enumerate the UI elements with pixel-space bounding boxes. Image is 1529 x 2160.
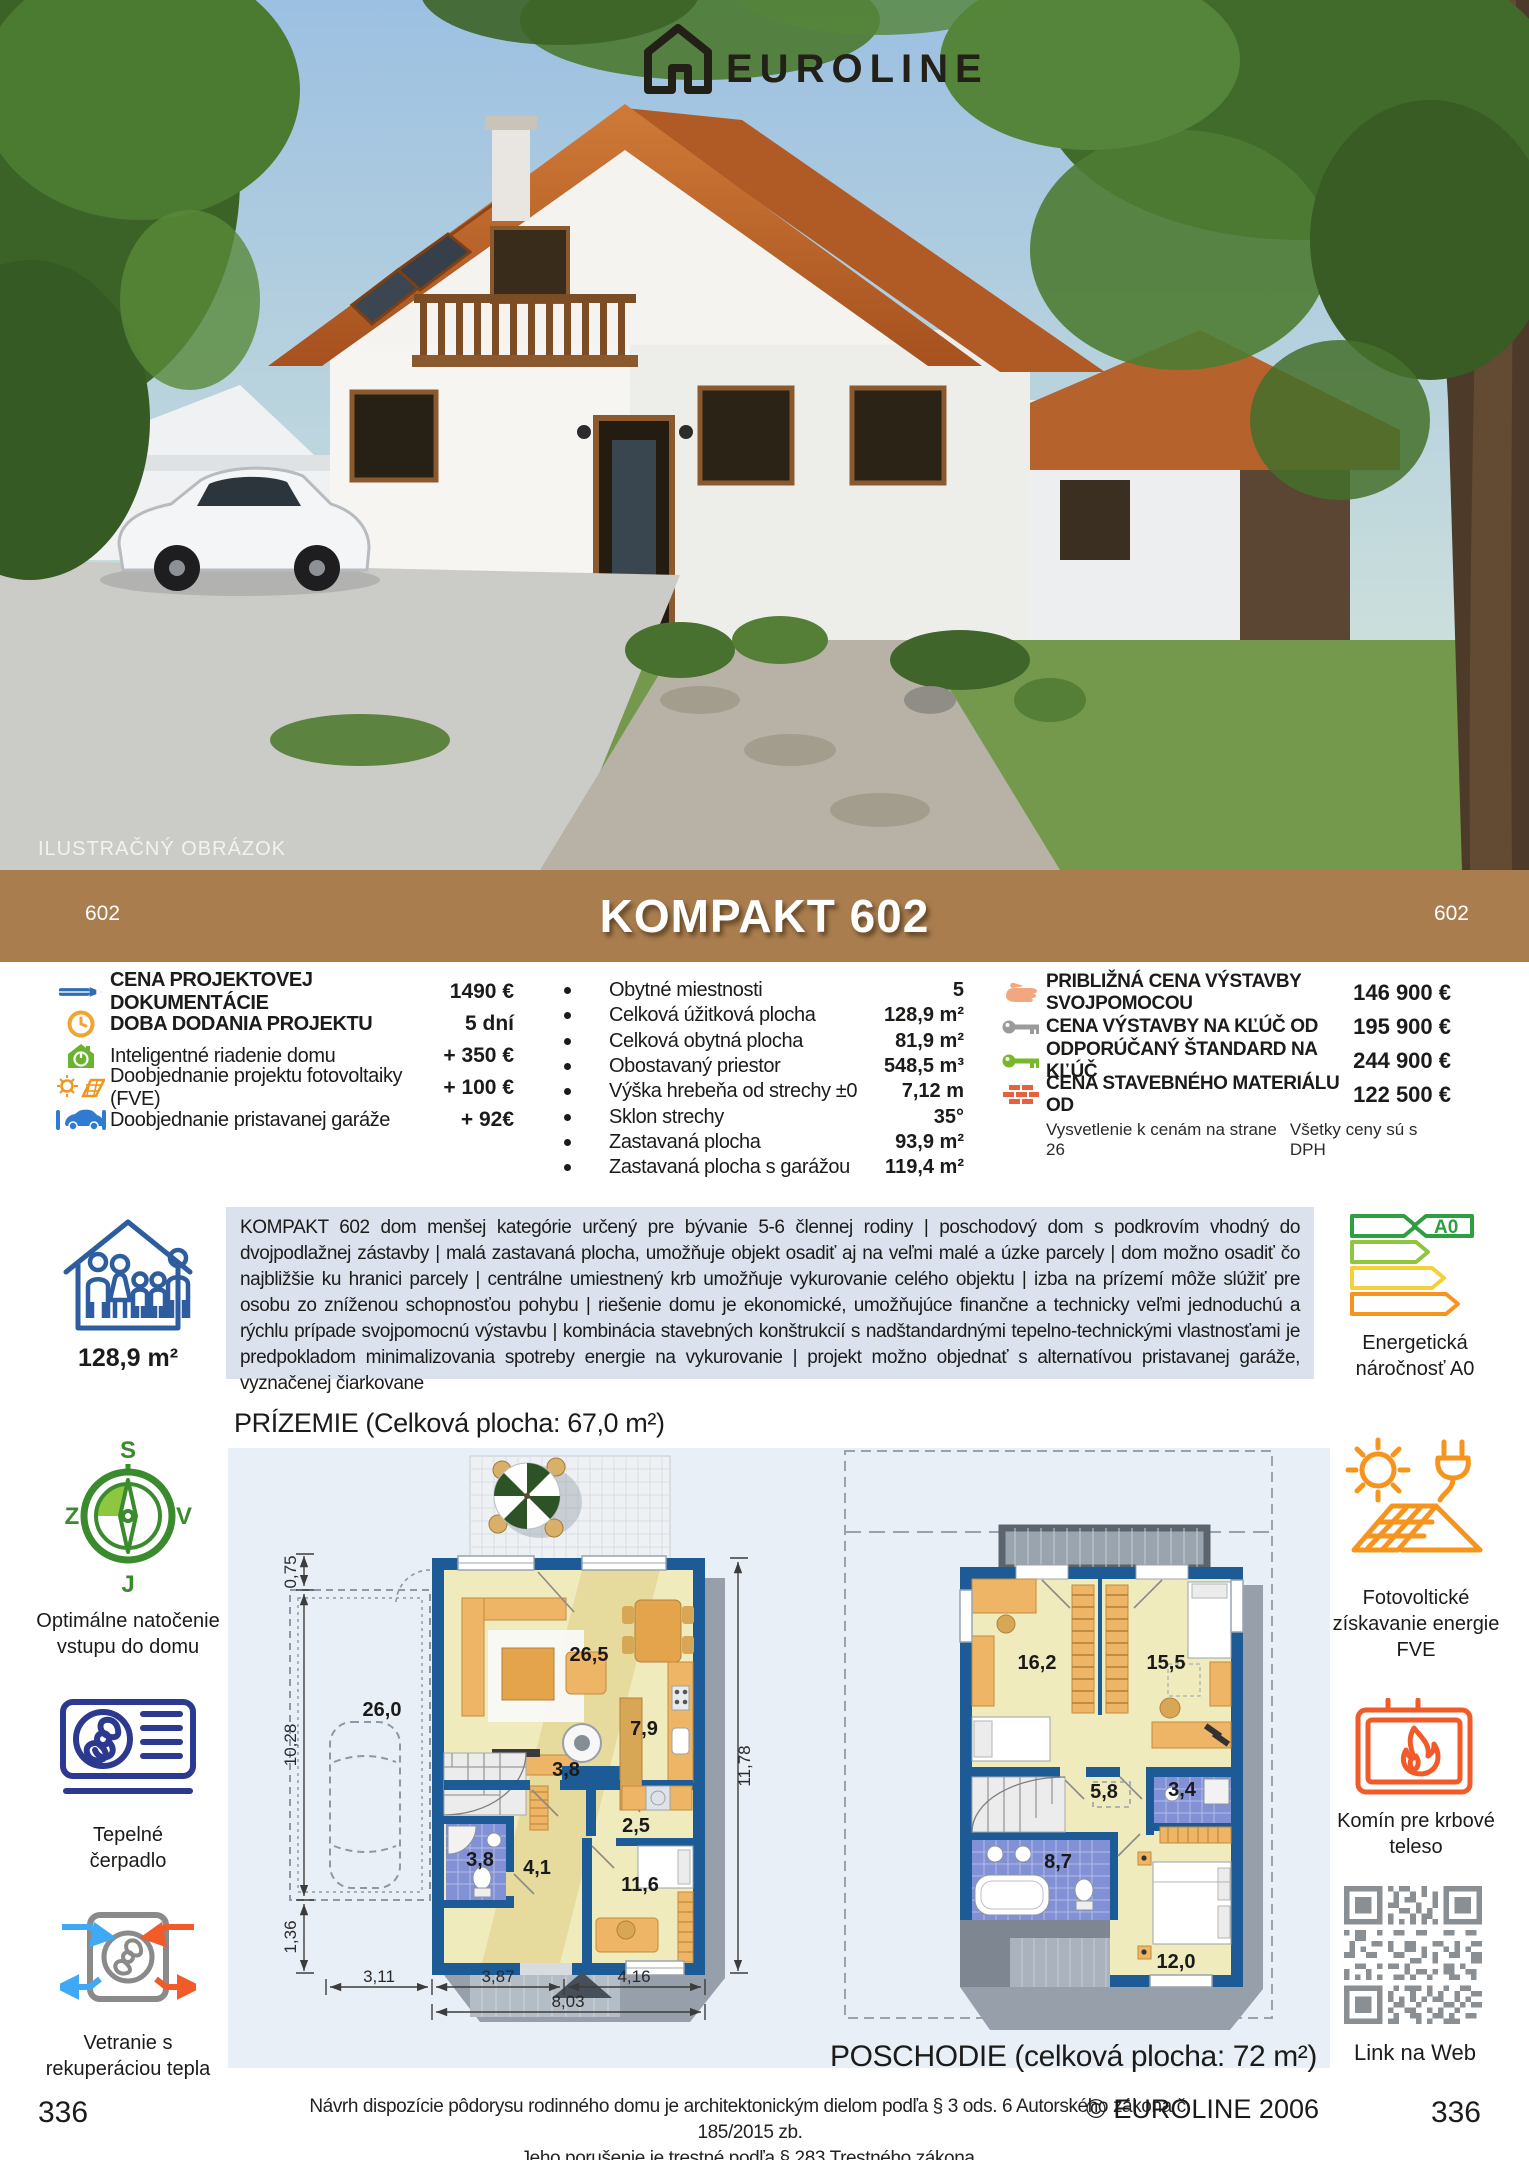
page-number-left: 336	[38, 2096, 88, 2130]
spec-row: Obytné miestnosti5	[556, 978, 964, 1003]
spec-row: Celková úžitková plocha128,9 m²	[556, 1003, 964, 1028]
photo-caption: ILUSTRAČNÝ OBRÁZOK	[38, 838, 286, 861]
pricing-value: + 100 €	[443, 1076, 514, 1100]
spec-label: Celková úžitková plocha	[609, 1004, 884, 1027]
room-area: 3,8	[466, 1849, 494, 1871]
ground-floor-heading: PRÍZEMIE (Celková plocha: 67,0 m²)	[234, 1408, 665, 1439]
energy-badge: A0	[1434, 1217, 1458, 1238]
compass-icon: S V J Z	[62, 1440, 194, 1598]
page-number-right: 336	[1431, 2096, 1481, 2130]
spec-label: Obostavaný priestor	[609, 1055, 884, 1078]
spec-label: Zastavaná plocha s garážou	[609, 1156, 885, 1179]
pricing-row: DOBA DODANIA PROJEKTU 5 dní	[52, 1008, 514, 1040]
price-note-left: Vysvetlenie k cenám na strane 26	[1046, 1120, 1290, 1160]
house-family-icon	[58, 1200, 198, 1335]
ground-floor-plan: 26,5 7,9 3,8 2,5 3,8 4,1 11,6 26,0 0,75 …	[230, 1450, 800, 2090]
spec-label: Sklon strechy	[609, 1106, 934, 1129]
dimension: 10,28	[281, 1724, 300, 1767]
legal-line1: Návrh dispozície pôdorysu rodinného domu…	[285, 2094, 1215, 2146]
pricing-row: CENA STAVEBNÉHO MATERIÁLU OD 122 500 €	[996, 1078, 1451, 1112]
spec-row: Zastavaná plocha s garážou119,4 m²	[556, 1155, 964, 1180]
pricing-value: 146 900 €	[1353, 980, 1451, 1006]
spec-label: Výška hrebeňa od strechy ±0	[609, 1080, 902, 1103]
heatpump-label-line2: čerpadlo	[28, 1848, 228, 1874]
specs-list: Obytné miestnosti5 Celková úžitková ploc…	[556, 978, 964, 1180]
pricing-label: Doobjednanie pristavanej garáže	[110, 1109, 461, 1132]
pricing-value: 195 900 €	[1353, 1014, 1451, 1040]
pv-label-line2: získavanie energie	[1330, 1611, 1502, 1637]
page-title: KOMPAKT 602	[600, 889, 930, 943]
pricing-label: CENA STAVEBNÉHO MATERIÁLU OD	[1046, 1073, 1353, 1117]
copyright: © EUROLINE 2006	[1086, 2094, 1319, 2125]
spec-value: 35°	[934, 1106, 964, 1129]
smart-home-icon	[66, 1042, 96, 1070]
spec-value: 93,9 m²	[895, 1131, 964, 1154]
description-text: KOMPAKT 602 dom menšej kategórie určený …	[226, 1207, 1314, 1405]
dimension: 4,16	[617, 1967, 650, 1986]
hand-icon	[1004, 980, 1038, 1006]
pricing-label: Doobjednanie projektu fotovoltaiky (FVE)	[110, 1065, 443, 1111]
pv-label-line1: Fotovoltické	[1330, 1585, 1502, 1611]
pricing-row: Doobjednanie pristavanej garáže + 92€	[52, 1104, 514, 1136]
ventilation-label-line2: rekuperáciou tepla	[18, 2056, 238, 2082]
spec-row: Sklon strechy35°	[556, 1104, 964, 1129]
ventilation-label-line1: Vetranie s	[18, 2030, 238, 2056]
key-green-icon	[1002, 1052, 1040, 1070]
room-area: 8,7	[1044, 1851, 1072, 1873]
upper-floor-plan: 16,2 15,5 5,8 3,4 8,7 12,0	[820, 1440, 1330, 2080]
pricing-row: CENA PROJEKTOVEJ DOKUMENTÁCIE 1490 €	[52, 976, 514, 1008]
dimension: 3,87	[481, 1967, 514, 1986]
spec-row: Obostavaný priestor548,5 m³	[556, 1054, 964, 1079]
spec-label: Zastavaná plocha	[609, 1131, 895, 1154]
house-photo: EUROLINE	[0, 0, 1529, 870]
spec-row: Výška hrebeňa od strechy ±07,12 m	[556, 1079, 964, 1104]
fireplace-label-line2: teleso	[1330, 1834, 1502, 1860]
project-code-right: 602	[1434, 902, 1469, 926]
spec-value: 7,12 m	[902, 1080, 964, 1103]
dimension: 0,75	[281, 1555, 300, 1588]
pricing-value: + 350 €	[443, 1044, 514, 1068]
room-area: 2,5	[622, 1815, 650, 1837]
room-area: 12,0	[1157, 1951, 1196, 1973]
clock-icon	[67, 1010, 95, 1038]
pricing-right: PRIBLIŽNÁ CENA VÝSTAVBY SVOJPOMOCOU 146 …	[996, 976, 1451, 1160]
room-area: 7,9	[630, 1718, 658, 1740]
pricing-value: + 92€	[461, 1108, 514, 1132]
spec-value: 548,5 m³	[884, 1055, 964, 1078]
photovoltaic-icon	[1340, 1432, 1488, 1562]
compass-label-line2: vstupu do domu	[28, 1634, 228, 1660]
spec-row: Celková obytná plocha81,9 m²	[556, 1029, 964, 1054]
qr-code-icon	[1344, 1886, 1482, 2024]
room-area: 5,8	[1090, 1781, 1118, 1803]
project-description: KOMPAKT 602 dom menšej kategórie určený …	[226, 1207, 1314, 1379]
pricing-value: 244 900 €	[1353, 1048, 1451, 1074]
pv-label-line3: FVE	[1330, 1637, 1502, 1663]
project-code-left: 602	[85, 902, 120, 926]
pricing-label: CENA VÝSTAVBY NA KĽÚČ OD	[1046, 1016, 1353, 1038]
key-gray-icon	[1002, 1018, 1040, 1036]
title-bar: 602 KOMPAKT 602 602	[0, 870, 1529, 962]
pricing-value: 5 dní	[465, 1012, 514, 1036]
heatpump-label-line1: Tepelné	[28, 1822, 228, 1848]
dimension: 8,03	[551, 1992, 584, 2011]
compass-west: Z	[65, 1503, 80, 1530]
room-area: 26,0	[363, 1699, 402, 1721]
spec-row: Zastavaná plocha93,9 m²	[556, 1130, 964, 1155]
upper-floor-heading: POSCHODIE (celková plocha: 72 m²)	[830, 2040, 1317, 2074]
dimension: 11,78	[735, 1745, 754, 1786]
bricks-icon	[1003, 1084, 1039, 1106]
compass-south: J	[121, 1571, 134, 1598]
catalog-page: EUROLINE ILUSTRAČNÝ OBRÁZOK 602 KOMPAKT …	[0, 0, 1529, 2160]
pricing-label: CENA PROJEKTOVEJ DOKUMENTÁCIE	[110, 969, 450, 1015]
spec-value: 128,9 m²	[884, 1004, 964, 1027]
dimension: 3,11	[363, 1967, 395, 1986]
spec-value: 5	[953, 979, 964, 1002]
spec-label: Celková obytná plocha	[609, 1030, 895, 1053]
room-area: 11,6	[621, 1874, 659, 1896]
heat-pump-icon	[58, 1698, 198, 1798]
energy-label-line2: náročnosť A0	[1330, 1356, 1500, 1382]
spec-value: 81,9 m²	[895, 1030, 964, 1053]
pencil-icon	[58, 984, 104, 1000]
compass-label-line1: Optimálne natočenie	[28, 1608, 228, 1634]
fireplace-icon	[1352, 1698, 1476, 1798]
price-note-right: Všetky ceny sú s DPH	[1290, 1120, 1451, 1160]
pricing-left: CENA PROJEKTOVEJ DOKUMENTÁCIE 1490 € DOB…	[52, 976, 514, 1136]
room-area: 16,2	[1018, 1652, 1057, 1674]
energy-label-line1: Energetická	[1330, 1330, 1500, 1356]
pricing-value: 122 500 €	[1353, 1082, 1451, 1108]
pricing-row: PRIBLIŽNÁ CENA VÝSTAVBY SVOJPOMOCOU 146 …	[996, 976, 1451, 1010]
svg-text:EUROLINE: EUROLINE	[726, 47, 989, 91]
spec-value: 119,4 m²	[885, 1156, 964, 1179]
pricing-value: 1490 €	[450, 980, 514, 1004]
legal-line2: Jeho porušenie je trestné podľa § 283 Tr…	[285, 2146, 1215, 2160]
solar-project-icon	[57, 1074, 105, 1102]
room-area: 3,8	[552, 1759, 580, 1781]
room-area: 15,5	[1147, 1652, 1186, 1674]
ventilation-icon	[60, 1905, 196, 2009]
total-area-label: 128,9 m²	[40, 1344, 216, 1373]
dimension: 1,36	[281, 1920, 300, 1953]
spec-label: Obytné miestnosti	[609, 979, 953, 1002]
room-area: 3,4	[1168, 1779, 1197, 1801]
pricing-label: PRIBLIŽNÁ CENA VÝSTAVBY SVOJPOMOCOU	[1046, 971, 1353, 1015]
qr-label: Link na Web	[1340, 2040, 1490, 2066]
garage-icon	[55, 1108, 107, 1132]
fireplace-label-line1: Komín pre krbové	[1330, 1808, 1502, 1834]
room-area: 4,1	[523, 1857, 551, 1879]
energy-rating-icon: A0	[1348, 1212, 1478, 1322]
room-area: 26,5	[570, 1644, 609, 1666]
compass-east: V	[176, 1503, 192, 1530]
pricing-row: Doobjednanie projektu fotovoltaiky (FVE)…	[52, 1072, 514, 1104]
compass-north: S	[120, 1440, 136, 1464]
terrace-table	[489, 1458, 565, 1537]
pricing-label: DOBA DODANIA PROJEKTU	[110, 1013, 465, 1036]
